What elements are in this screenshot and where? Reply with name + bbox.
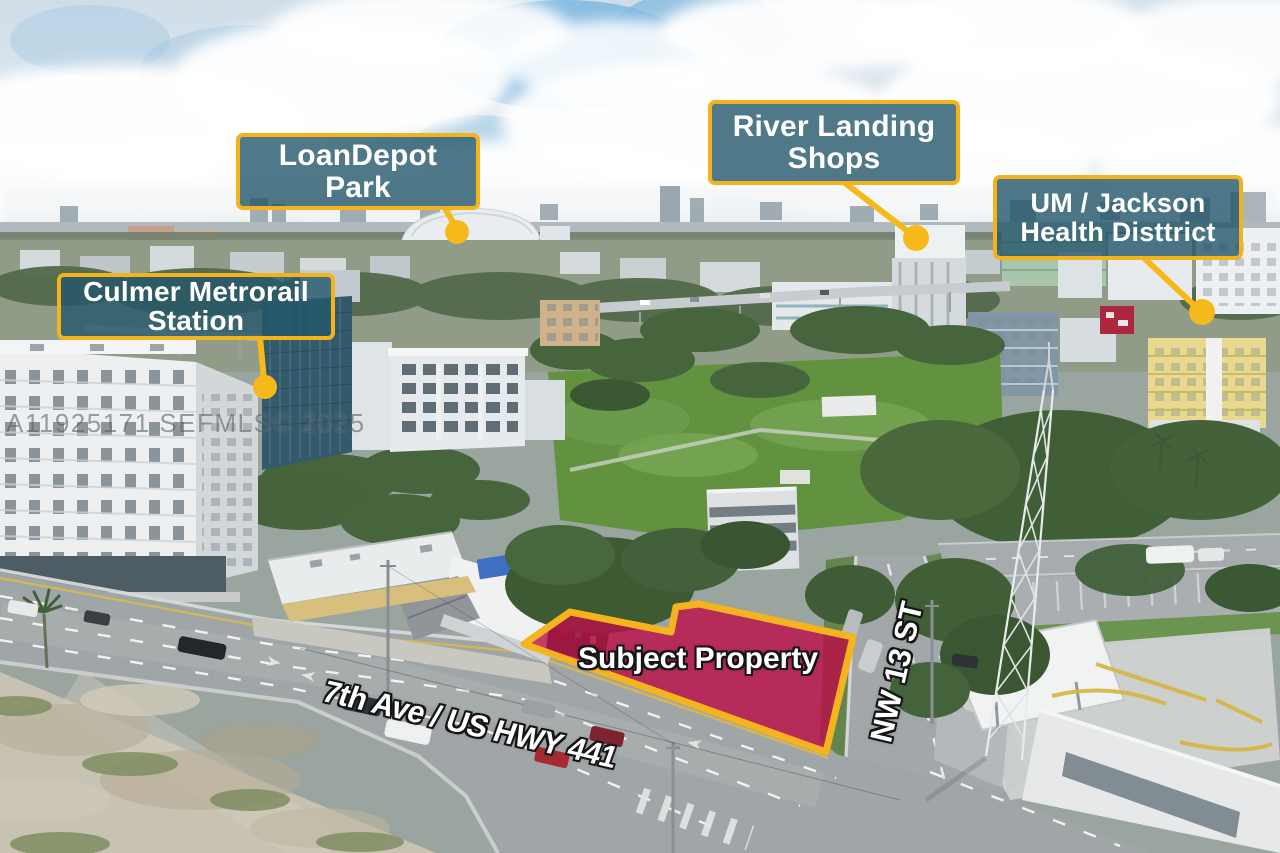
location-dot-river-landing <box>903 225 929 251</box>
callout-loandepot-park: LoanDepot Park <box>236 133 480 210</box>
tan-building <box>540 300 600 346</box>
callout-um-jackson-health-district: UM / Jackson Health Disttrict <box>993 175 1243 260</box>
callout-culmer-line1: Culmer Metrorail <box>83 278 309 307</box>
callout-um-jackson-line2: Health Disttrict <box>1020 218 1215 247</box>
mls-watermark: A11925171 SEFMLS© 2025 <box>6 408 366 439</box>
callout-culmer-metrorail-station: Culmer Metrorail Station <box>57 273 335 340</box>
callout-river-landing-shops-line1: River Landing <box>733 111 936 143</box>
location-dot-culmer <box>253 375 277 399</box>
aerial-photo: LoanDepot Park River Landing Shops UM / … <box>0 0 1280 853</box>
callout-river-landing-shops: River Landing Shops <box>708 100 960 185</box>
red-hotel-sign <box>1100 306 1134 334</box>
location-dot-um-jackson <box>1189 299 1215 325</box>
left-apartment-building <box>0 340 258 602</box>
callout-loandepot-park-line1: LoanDepot <box>279 140 437 172</box>
location-dot-loandepot-park <box>445 220 469 244</box>
callout-loandepot-park-line2: Park <box>325 172 391 204</box>
callout-um-jackson-line1: UM / Jackson <box>1031 189 1206 218</box>
subject-property-label: Subject Property <box>560 642 836 676</box>
callout-culmer-line2: Station <box>148 307 244 336</box>
callout-river-landing-shops-line2: Shops <box>788 143 881 175</box>
